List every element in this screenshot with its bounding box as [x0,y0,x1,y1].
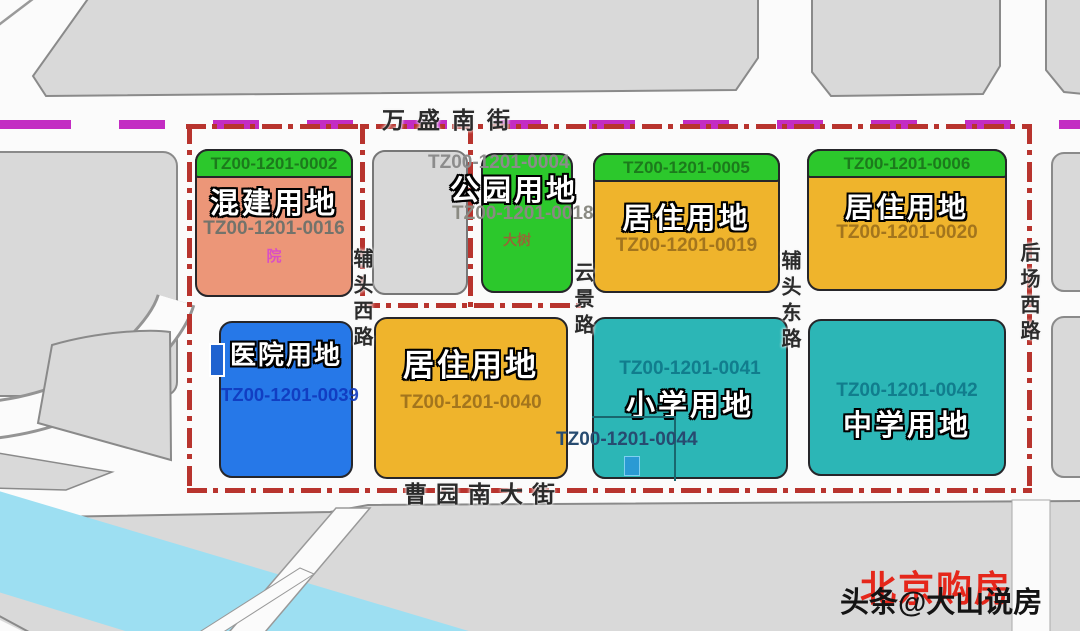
parcel-strip: TZ00-1201-0005 [593,153,780,182]
parcel-code: TZ00-1201-0042 [810,380,1004,402]
basemap-layer [0,0,1080,631]
parcel-strip: TZ00-1201-0006 [807,149,1007,178]
parcel-residential-3: 居住用地 TZ00-1201-0040 [374,317,568,479]
road-edge [0,0,42,30]
boundary-bottom [187,488,1032,493]
parcel-strip-code: TZ00-1201-0006 [844,154,971,174]
parcel-small-note: 院 [197,245,351,266]
city-block [1046,0,1080,94]
sub-parcel-code: TZ00-1201-0044 [556,429,698,451]
city-block [38,331,171,460]
parcel-use-label: 中学用地 [810,402,1004,444]
parcel-residential-1: TZ00-1201-0005 居住用地 TZ00-1201-0019 [593,153,780,293]
boundary-top [186,124,1032,129]
parcel-hospital: 医院用地 TZ00-1201-0039 [219,321,353,478]
parcel-strip-code: TZ00-1201-0002 [211,154,338,174]
parcel-use-label: 混建用地 [197,180,351,222]
parcel-code: TZ00-1201-0019 [595,235,778,257]
watermark-toutiao: 头条@大山说房 [840,579,1042,621]
city-block [1052,153,1080,291]
boundary-notch-bottom [360,303,583,308]
parcel-residential-2: TZ00-1201-0006 居住用地 TZ00-1201-0020 [807,149,1007,291]
school-marker-badge [624,456,640,476]
parcel-code: TZ00-1201-0040 [376,392,566,414]
parcel-code: TZ00-1201-0039 [221,384,351,406]
city-block [812,0,1000,96]
parcel-code: TZ00-1201-0018 [452,203,594,225]
road-label-houchang-west: 后场西路 [1014,242,1043,346]
parcel-strip: TZ00-1201-0002 [195,149,353,178]
parcel-primary-school: TZ00-1201-0041 小学用地 [592,317,788,479]
parcel-strip-code: TZ00-1201-0005 [623,158,750,178]
road-label-wansheng: 万盛南街 [382,101,522,135]
city-block [1052,317,1080,477]
road-label-futou-west: 辅头西路 [347,248,376,352]
parcel-use-label: 居住用地 [809,186,1005,226]
road-label-yunjing: 云景路 [568,262,597,340]
parcel-code: TZ00-1201-0016 [197,218,351,240]
parcel-middle-school: TZ00-1201-0042 中学用地 [808,319,1006,476]
city-block [0,452,112,490]
road-label-caoyuan: 曹园南大街 [404,475,564,509]
parcel-use-label: 医院用地 [221,335,351,372]
parcel-use-label: 居住用地 [376,340,566,385]
parcel-small-note: 大树 [503,230,531,250]
city-block [33,0,758,96]
road-label-futou-east: 辅头东路 [775,250,804,354]
land-use-planning-map: TZ00-1201-0002 混建用地 TZ00-1201-0016 院 TZ0… [0,0,1080,631]
parcel-code: TZ00-1201-0020 [809,222,1005,244]
hospital-marker-badge [209,343,225,377]
boundary-left [187,124,192,493]
parcel-code: TZ00-1201-0041 [594,358,786,380]
parcel-use-label: 居住用地 [595,195,778,237]
parcel-mixed-use: TZ00-1201-0002 混建用地 TZ00-1201-0016 院 [195,149,353,297]
